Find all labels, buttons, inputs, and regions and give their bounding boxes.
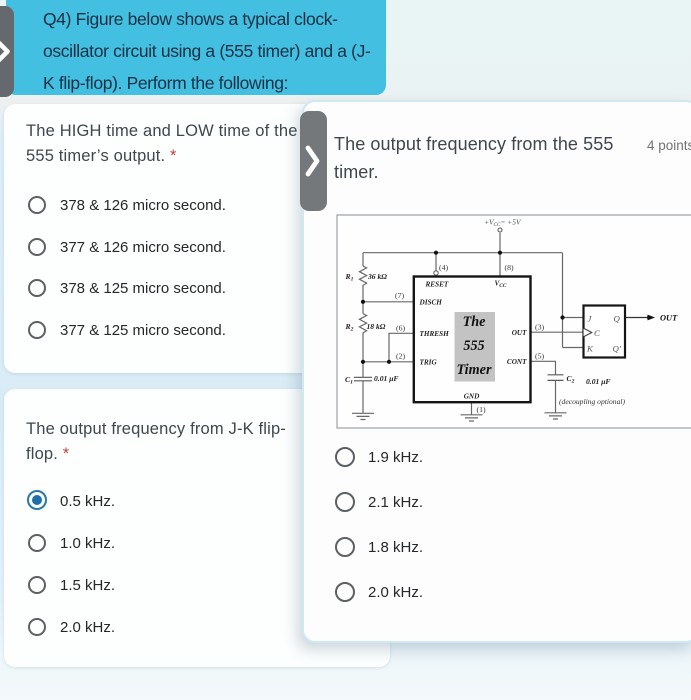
svg-text:K: K [586, 344, 594, 354]
svg-text:C: C [594, 328, 600, 338]
svg-text:(7): (7) [395, 291, 404, 300]
svg-text:555: 555 [463, 338, 484, 354]
svg-text:CONT: CONT [507, 358, 527, 366]
svg-text:THRESH: THRESH [420, 330, 450, 338]
svg-text:OUT: OUT [512, 329, 527, 337]
svg-text:TRIG: TRIG [420, 359, 438, 367]
svg-text:Q: Q [614, 314, 621, 324]
svg-text:18 kΩ: 18 kΩ [367, 322, 386, 331]
svg-text:(decoupling optional): (decoupling optional) [559, 397, 625, 406]
svg-text:(2): (2) [396, 352, 405, 361]
svg-text:0.01 μF: 0.01 μF [586, 377, 610, 386]
svg-text:OUT: OUT [660, 314, 678, 323]
svg-text:GND: GND [464, 393, 480, 401]
svg-text:(1): (1) [477, 405, 486, 414]
svg-text:(8): (8) [505, 263, 514, 272]
svg-text:(4): (4) [439, 263, 448, 272]
svg-text:+VCC= +5V: +VCC= +5V [484, 218, 522, 228]
svg-text:36 kΩ: 36 kΩ [367, 272, 387, 281]
svg-text:DISCH: DISCH [419, 299, 443, 307]
svg-text:(3): (3) [535, 323, 544, 332]
svg-text:Timer: Timer [457, 362, 492, 378]
svg-text:RESET: RESET [425, 281, 449, 289]
svg-text:(6): (6) [396, 324, 405, 333]
svg-text:(5): (5) [535, 352, 544, 361]
svg-text:The: The [463, 314, 486, 330]
svg-text:0.01 μF: 0.01 μF [374, 374, 398, 383]
svg-text:Qʹ: Qʹ [613, 344, 621, 354]
